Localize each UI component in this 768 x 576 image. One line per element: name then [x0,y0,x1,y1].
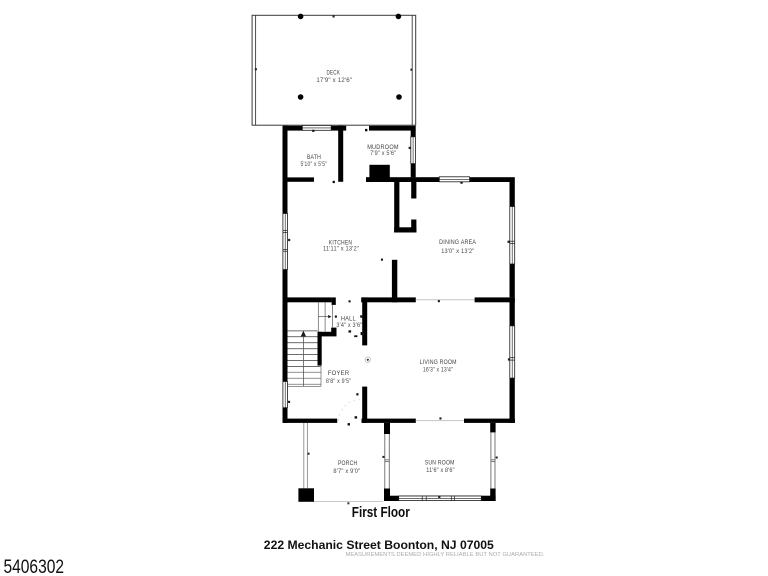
svg-text:PORCH: PORCH [338,460,358,467]
svg-text:7'9" x 5'6": 7'9" x 5'6" [370,150,396,157]
svg-text:8'8" x 9'5": 8'8" x 9'5" [326,378,351,385]
svg-text:11'11" x 13'2": 11'11" x 13'2" [323,246,359,253]
svg-text:222 Mechanic Street Boonton, N: 222 Mechanic Street Boonton, NJ 07005 [264,538,494,552]
svg-text:5'10" x 5'5": 5'10" x 5'5" [301,161,328,168]
svg-text:LIVING ROOM: LIVING ROOM [420,359,457,366]
svg-text:11'6" x 8'6": 11'6" x 8'6" [426,467,454,474]
svg-text:MEASUREMENTS DEEMED HIGHLY REL: MEASUREMENTS DEEMED HIGHLY RELIABLE BUT … [346,552,545,558]
svg-text:8'7" x 9'0": 8'7" x 9'0" [333,468,360,475]
svg-text:5406302: 5406302 [4,557,65,576]
svg-text:16'3" x 13'4": 16'3" x 13'4" [423,367,453,374]
svg-text:DECK: DECK [327,70,341,77]
svg-text:First Floor: First Floor [352,505,410,521]
svg-text:DINING AREA: DINING AREA [439,239,477,246]
svg-text:BATH: BATH [307,154,321,161]
svg-text:FOYER: FOYER [328,370,350,377]
svg-text:13'0" x 13'2": 13'0" x 13'2" [441,248,474,255]
svg-text:17'9" x 12'6": 17'9" x 12'6" [316,77,352,84]
svg-text:3'4" x 3'6": 3'4" x 3'6" [336,322,362,329]
svg-text:SUN ROOM: SUN ROOM [425,460,455,467]
